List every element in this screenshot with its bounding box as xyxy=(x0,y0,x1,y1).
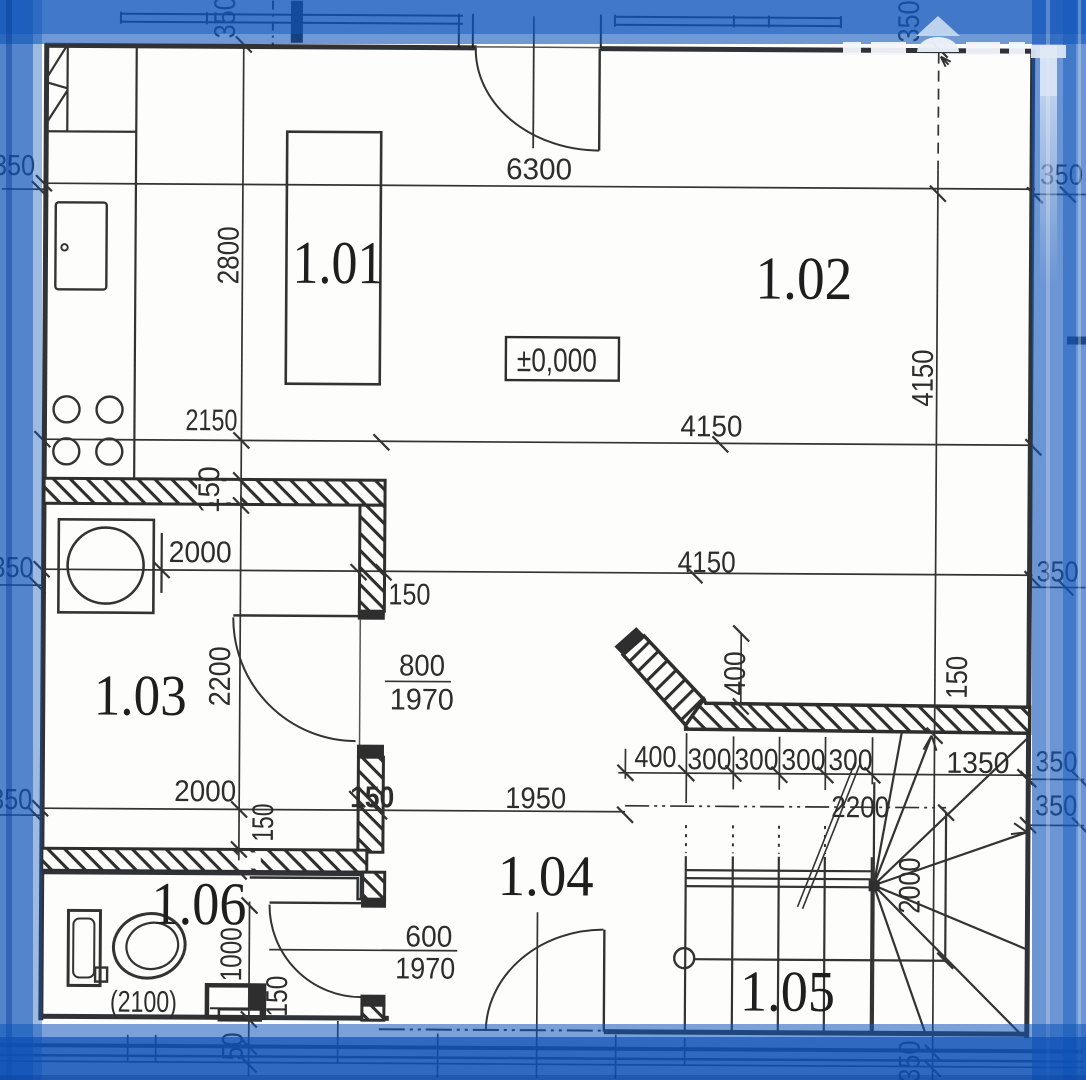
svg-text:1950: 1950 xyxy=(505,782,566,815)
svg-text:800: 800 xyxy=(399,649,445,682)
svg-text:300: 300 xyxy=(734,743,778,776)
svg-text:1350: 1350 xyxy=(946,747,1009,780)
svg-text:1.01: 1.01 xyxy=(292,230,383,298)
svg-text:1970: 1970 xyxy=(390,683,454,716)
svg-text:150: 150 xyxy=(941,656,974,699)
svg-text:150: 150 xyxy=(247,803,280,841)
svg-text:150: 150 xyxy=(350,781,394,814)
svg-text:1.03: 1.03 xyxy=(94,663,187,729)
svg-text:2200: 2200 xyxy=(204,646,237,706)
svg-text:300: 300 xyxy=(687,743,731,776)
svg-text:1.04: 1.04 xyxy=(498,843,594,909)
svg-text:2000: 2000 xyxy=(174,775,236,808)
svg-text:6300: 6300 xyxy=(506,153,572,186)
svg-text:2200: 2200 xyxy=(831,791,889,824)
svg-text:(2100): (2100) xyxy=(110,986,177,1019)
svg-text:300: 300 xyxy=(828,744,872,777)
svg-text:4150: 4150 xyxy=(680,410,742,443)
svg-text:1.02: 1.02 xyxy=(755,246,852,314)
svg-text:400: 400 xyxy=(719,651,752,695)
svg-text:2000: 2000 xyxy=(169,536,232,569)
svg-text:1000: 1000 xyxy=(215,927,248,981)
svg-text:150: 150 xyxy=(388,578,430,611)
svg-text:400: 400 xyxy=(634,741,676,774)
svg-text:±0,000: ±0,000 xyxy=(517,341,597,378)
svg-text:150: 150 xyxy=(193,466,226,513)
svg-text:4150: 4150 xyxy=(907,349,940,406)
svg-text:4150: 4150 xyxy=(678,546,736,579)
svg-text:2150: 2150 xyxy=(185,404,237,437)
svg-text:300: 300 xyxy=(781,744,825,777)
svg-text:2800: 2800 xyxy=(212,226,245,284)
svg-text:600: 600 xyxy=(405,920,452,953)
svg-text:2000: 2000 xyxy=(893,857,926,913)
svg-text:1.05: 1.05 xyxy=(740,958,835,1024)
svg-text:150: 150 xyxy=(261,976,294,1017)
svg-text:1970: 1970 xyxy=(395,952,455,985)
